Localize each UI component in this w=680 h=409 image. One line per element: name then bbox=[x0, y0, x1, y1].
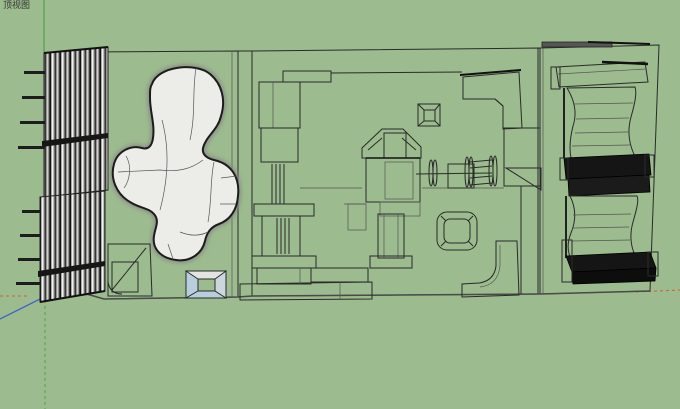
louver-peg bbox=[16, 282, 41, 285]
louver-peg bbox=[18, 258, 41, 261]
model-canvas[interactable] bbox=[0, 0, 680, 409]
louver-peg bbox=[18, 146, 45, 149]
louver-peg bbox=[20, 234, 41, 237]
sketchup-viewport[interactable]: 顶视图 bbox=[0, 0, 680, 409]
louver-peg bbox=[20, 121, 45, 124]
louver-peg bbox=[22, 210, 41, 213]
view-label: 顶视图 bbox=[3, 1, 30, 11]
louver-peg bbox=[24, 71, 45, 74]
louver-peg bbox=[22, 96, 45, 99]
